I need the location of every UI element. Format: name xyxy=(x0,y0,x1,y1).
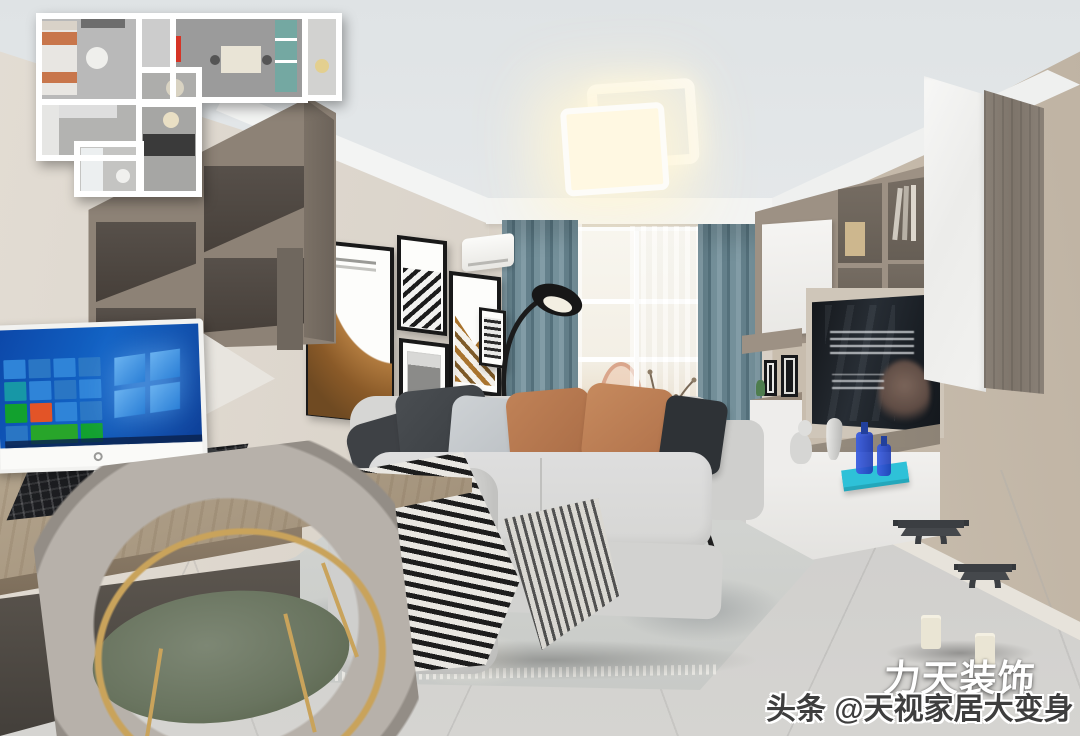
ac-vent xyxy=(468,259,508,267)
candle xyxy=(921,615,941,649)
desk-chair-gold-frame xyxy=(59,493,419,736)
floor-plan-inset xyxy=(25,8,345,200)
windows-logo-icon xyxy=(114,349,180,419)
living-room-render: 力天装饰 头条 @天视家居大变身 xyxy=(0,0,1080,736)
figurine-head xyxy=(798,420,812,436)
blue-glass-bottle xyxy=(877,444,891,476)
small-photo-frame xyxy=(781,355,798,397)
small-photo-frame xyxy=(764,360,777,396)
bird-figurine xyxy=(786,420,816,464)
ceiling-light-panel xyxy=(560,102,670,197)
blue-glass-bottle xyxy=(856,432,873,474)
lantern-glass-body xyxy=(898,520,965,528)
tall-cabinet-wood xyxy=(984,90,1044,394)
wall-art-zigzag xyxy=(397,235,447,336)
tall-cabinet-white xyxy=(924,76,986,392)
television xyxy=(812,294,940,432)
tv-screen-text-lines xyxy=(832,374,883,389)
figurine-body xyxy=(790,432,812,464)
small-plant xyxy=(756,380,765,396)
channel-caption: 头条 @天视家居大变身 xyxy=(766,684,1080,724)
zigzag-pattern xyxy=(403,268,441,331)
windows-start-tiles xyxy=(3,357,110,445)
tv-screen-text-lines xyxy=(830,330,914,354)
book-spine xyxy=(911,185,916,241)
monitor-screen-windows-start xyxy=(0,324,202,449)
tv-reflected-armchair xyxy=(879,360,930,423)
lantern-glass-body xyxy=(958,564,1013,572)
ceiling-light xyxy=(558,77,705,196)
book-stack xyxy=(845,222,865,256)
cabinet-side-panel xyxy=(277,248,303,350)
start-tiles-left-cut xyxy=(0,364,2,441)
air-conditioner xyxy=(462,233,514,272)
